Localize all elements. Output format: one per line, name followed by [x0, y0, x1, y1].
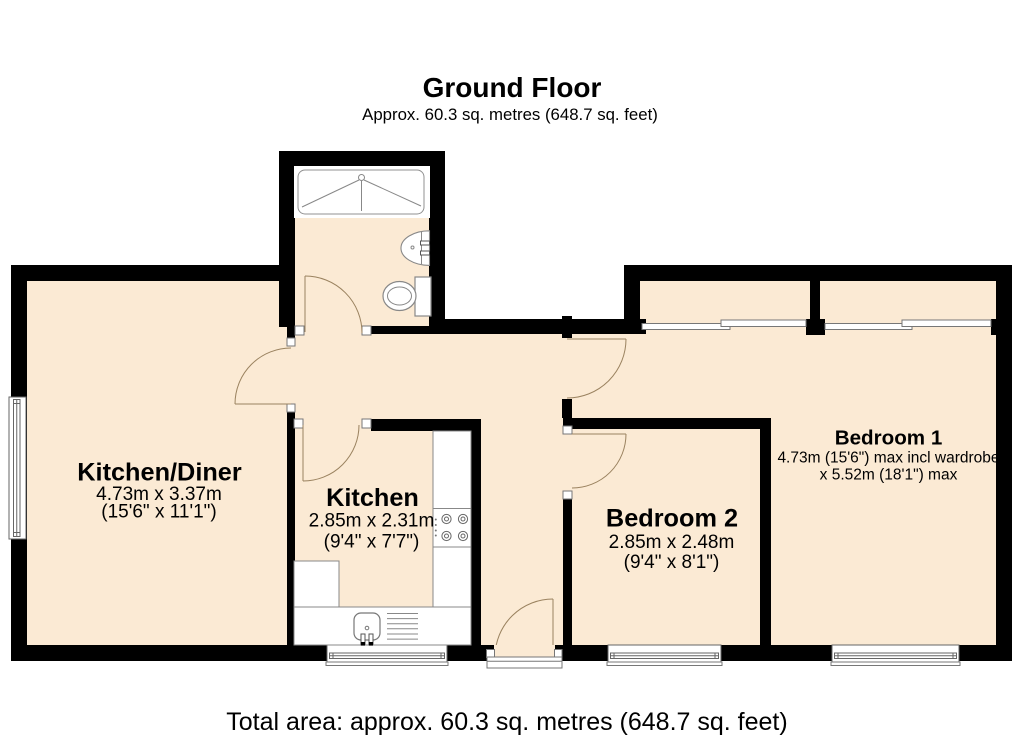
svg-text:4.73m (15'6") max incl wardrob: 4.73m (15'6") max incl wardrobe [777, 450, 999, 467]
svg-text:x 5.52m (18'1") max: x 5.52m (18'1") max [820, 467, 958, 484]
svg-text:Kitchen/Diner: Kitchen/Diner [77, 459, 242, 487]
svg-text:Bedroom 2: Bedroom 2 [606, 505, 738, 533]
svg-text:(9'4" x 7'7"): (9'4" x 7'7") [324, 532, 420, 553]
svg-text:Approx. 60.3 sq. metres (648.7: Approx. 60.3 sq. metres (648.7 sq. feet) [362, 105, 658, 124]
svg-text:Bedroom 1: Bedroom 1 [835, 427, 943, 450]
svg-text:Ground Floor: Ground Floor [423, 72, 602, 103]
svg-text:(15'6" x 11'1"): (15'6" x 11'1") [101, 502, 216, 523]
svg-text:2.85m x 2.31m: 2.85m x 2.31m [309, 511, 435, 532]
svg-text:(9'4" x 8'1"): (9'4" x 8'1") [624, 552, 720, 573]
svg-text:2.85m x 2.48m: 2.85m x 2.48m [609, 532, 735, 553]
svg-text:Kitchen: Kitchen [326, 484, 419, 512]
svg-text:Total area: approx. 60.3 sq. m: Total area: approx. 60.3 sq. metres (648… [226, 708, 787, 736]
